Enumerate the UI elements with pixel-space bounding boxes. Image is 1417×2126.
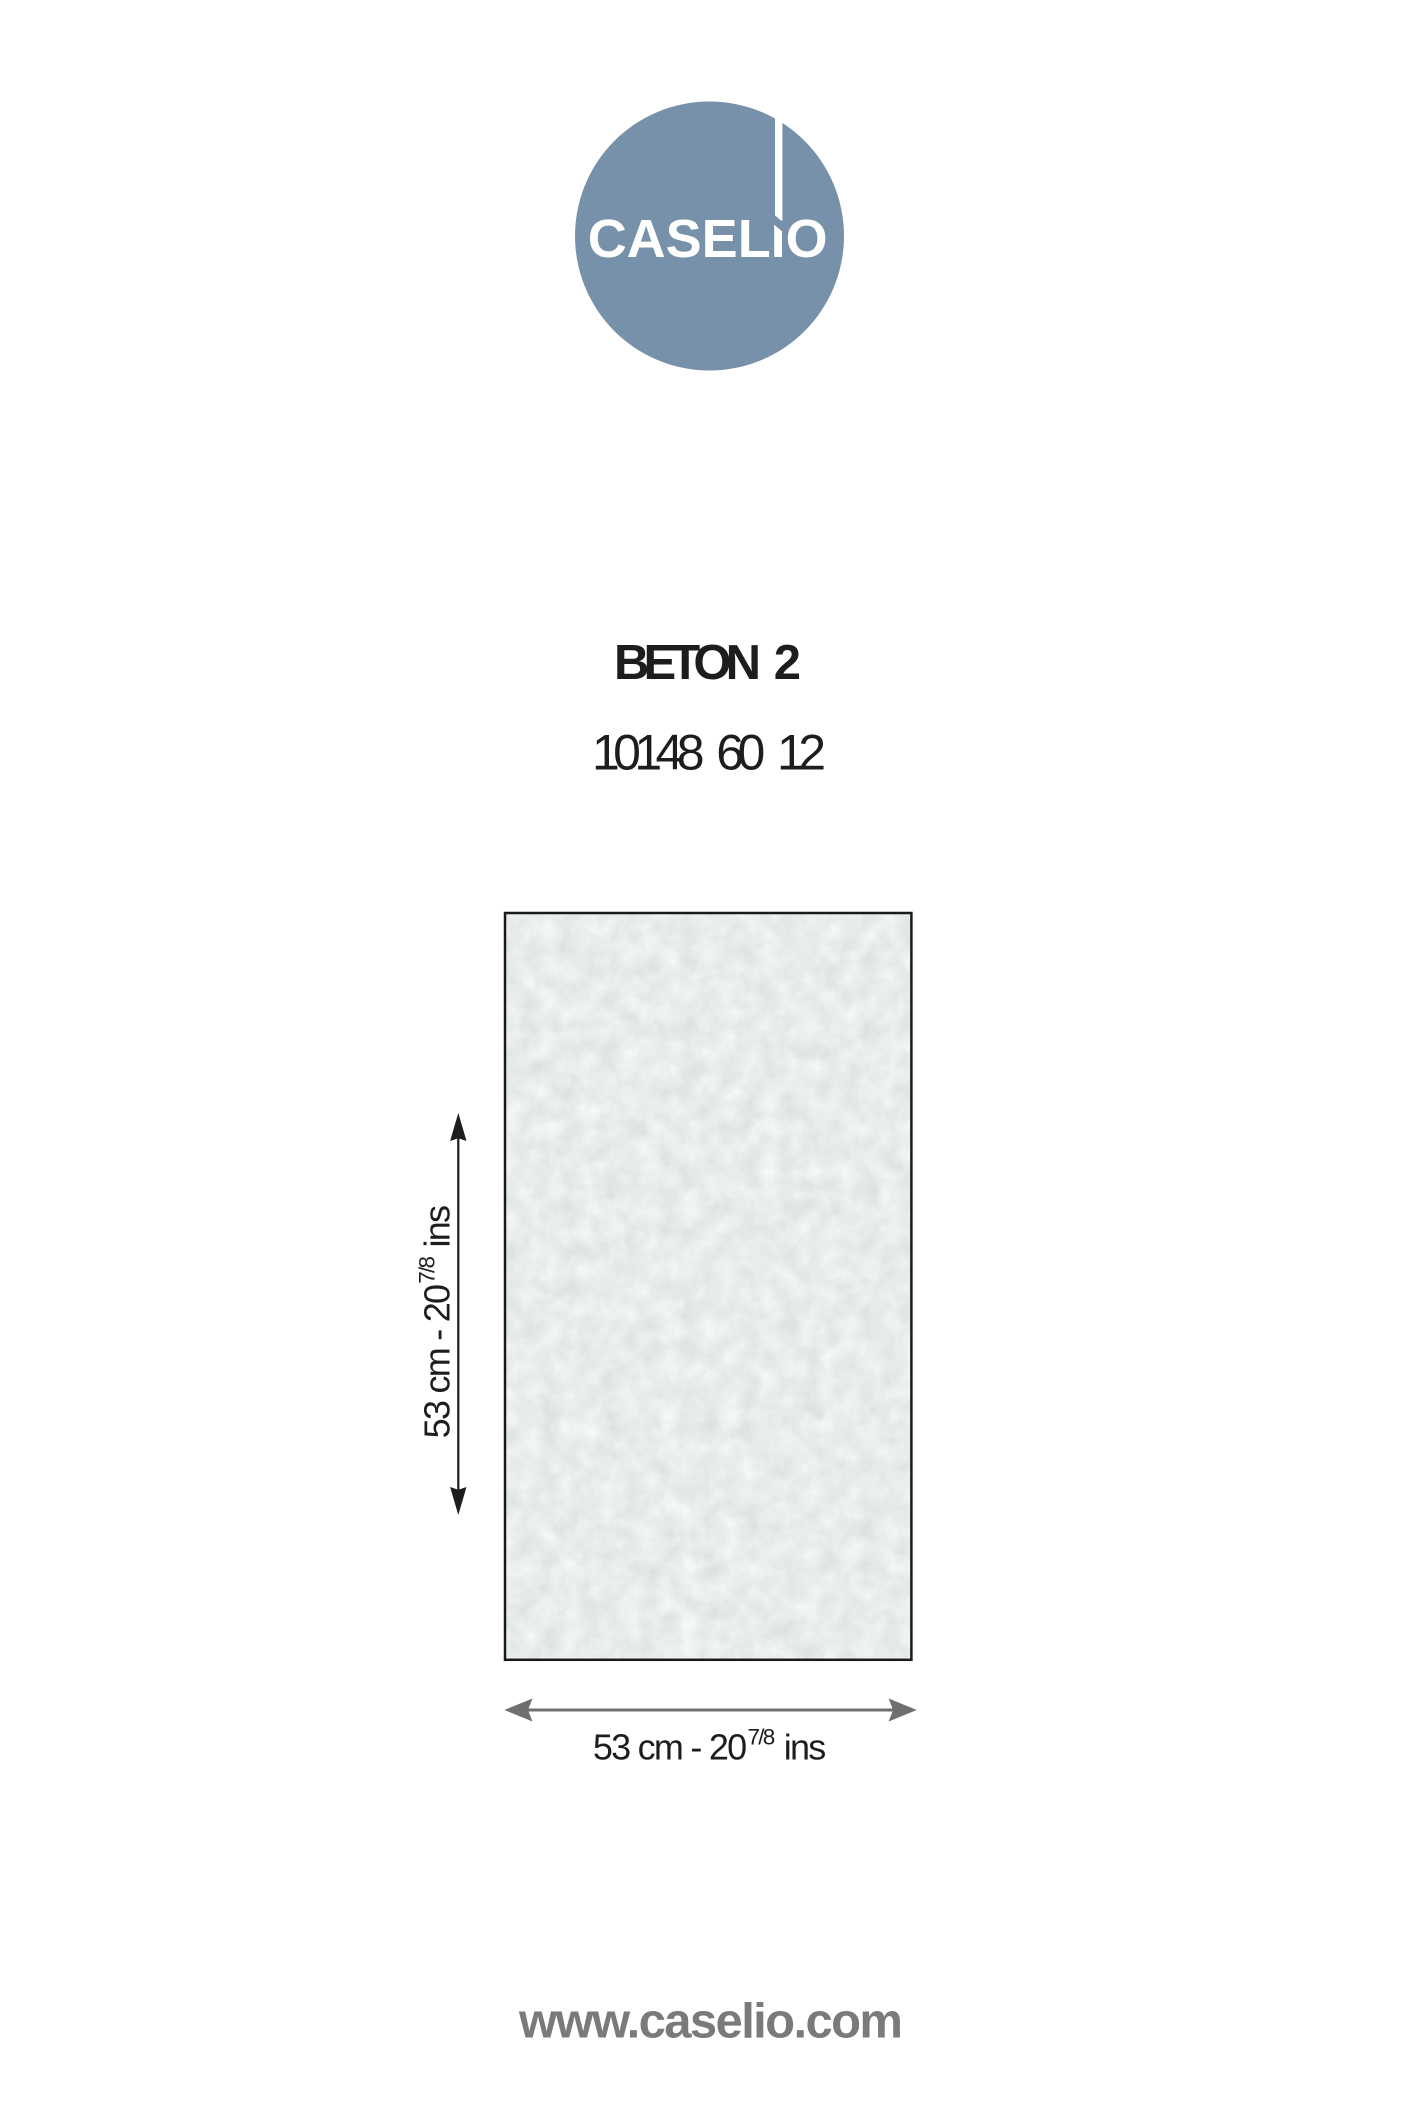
svg-text:53 cm - 207/8 ins: 53 cm - 207/8 ins bbox=[415, 1206, 458, 1438]
svg-text:BETON 2: BETON 2 bbox=[614, 636, 801, 690]
svg-text:www.caselio.com: www.caselio.com bbox=[518, 1995, 903, 2049]
svg-text:CASELIO: CASELIO bbox=[588, 209, 828, 269]
svg-text:53 cm - 207/8 ins: 53 cm - 207/8 ins bbox=[593, 1725, 825, 1768]
svg-text:10148 60 12: 10148 60 12 bbox=[592, 725, 826, 781]
